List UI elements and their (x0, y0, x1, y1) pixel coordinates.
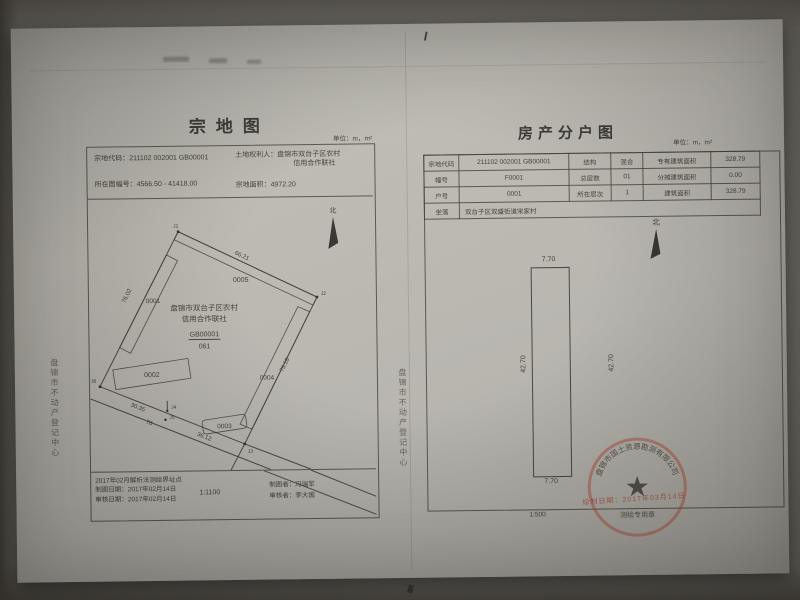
parcel-code-value: 211102 002001 GB00001 (129, 154, 208, 162)
cell-label: 户号 (424, 187, 459, 203)
cell-label: 建筑面积 (643, 184, 711, 201)
bleed-through-mark (247, 60, 261, 64)
seal-star-icon: ★ (625, 471, 650, 502)
unit-outline (531, 267, 573, 477)
credits: 制图者：冯瑞军 审核者：李大国 (269, 479, 315, 502)
registry-center-vertical-text-middle: 盘锦市不动产登记中心 (397, 368, 410, 528)
cell-label: 分摊建筑面积 (643, 168, 711, 185)
point-j2-label: J2 (321, 291, 327, 297)
unit-dim-left: 42.70 (520, 327, 528, 401)
cell-label: 幢号 (424, 171, 459, 187)
cell-value-location: 双台子区双盛街道宋家村 (459, 199, 760, 219)
seal-title: 测绘专用章 (620, 510, 655, 519)
rights-holder-value-line2: 信用合作联社 (235, 158, 369, 169)
cell-value: 328.79 (711, 183, 760, 200)
dim-right-edge: 73.18 (279, 357, 291, 374)
north-arrow-icon (650, 229, 660, 259)
unit-map-scale: 1:500 (503, 510, 573, 520)
registry-center-vertical-text-left: 盘锦市不动产登记中心 (49, 358, 62, 518)
unit-dim-bottom: 7.70 (521, 478, 581, 486)
unit-map-north: 北 (643, 215, 670, 261)
dim-left-edge: 76.02 (121, 288, 133, 305)
map-sheet-label: 所在图幅号： (95, 181, 137, 189)
cell-label: 结构 (569, 153, 611, 170)
building-0004-outline (239, 307, 311, 430)
unit-info-table: 宗地代码 211102 002001 GB00001 结构 混合 专有建筑面积 … (423, 151, 761, 220)
north-label: 北 (652, 218, 660, 227)
owner-name-line2: 信用合作联社 (182, 313, 228, 324)
paper-crease (29, 62, 765, 72)
owner-name-line1: 盘锦市双台子区农村 (170, 302, 238, 313)
bleed-through-mark (209, 58, 227, 63)
building-0003-label: 0003 (217, 423, 232, 430)
cell-value: F0001 (459, 169, 569, 186)
rights-holder-value-line1: 盘锦市双台子区农村 (277, 151, 340, 159)
point-j4-label: J4 (171, 405, 176, 411)
parcel-code-label: 宗地代码： (94, 155, 129, 162)
cell-label: 所在层次 (569, 185, 611, 202)
parcel-map-drawing: 北 0005 0001 0002 0003 (88, 196, 376, 471)
parcel-area-field: 宗地面积：4972.20 (236, 180, 296, 190)
building-0002-label: 0002 (144, 372, 160, 379)
land-use-code: 061 (199, 343, 211, 350)
rights-holder-field: 土地权利人：盘锦市双台子区农村 信用合作联社 (235, 149, 369, 169)
document-paper: 宗地图 单位：m，m² 宗地代码：211102 002001 GB00001 土… (11, 19, 790, 582)
cell-label: 总层数 (569, 169, 611, 186)
point-j3-label: J3 (248, 449, 254, 455)
parcel-number: GB00001 (190, 331, 220, 338)
unit-dim-top: 7.70 (518, 256, 578, 264)
drafter-name: 制图者：冯瑞军 (269, 479, 315, 491)
point-j1-label: J1 (173, 224, 179, 230)
cell-value: 1 (611, 185, 643, 201)
cell-value: 混合 (611, 153, 643, 169)
building-0005-label: 0005 (233, 277, 249, 284)
cell-value: 328.79 (711, 151, 760, 168)
point-j5-label: J5 (169, 415, 174, 421)
rights-holder-label: 土地权利人： (235, 151, 277, 159)
dim-top-edge: 66.21 (234, 250, 251, 262)
photo-of-document: 宗地图 单位：m，m² 宗地代码：211102 002001 GB00001 土… (0, 0, 800, 600)
dim-road: 76 (145, 419, 154, 427)
building-0004-label: 0004 (260, 375, 275, 382)
bleed-through-mark (163, 57, 189, 62)
parcel-area-label: 宗地面积： (236, 182, 271, 189)
building-0001-label: 0001 (146, 298, 161, 305)
survey-note-review-date: 审核日期：2017年02月14日 (95, 495, 182, 505)
pen-tick-mark (424, 32, 428, 41)
parcel-map-panel: 宗地代码：211102 002001 GB00001 土地权利人：盘锦市双台子区… (86, 143, 380, 522)
cell-label: 宗地代码 (424, 155, 459, 171)
building-0005-outline (174, 230, 317, 307)
north-arrow-icon (328, 217, 338, 249)
cell-label: 坐落 (424, 203, 459, 219)
surveyor-seal: 盘锦市国土资源勘测有限公司 ★ 测绘专用章 (585, 434, 690, 539)
parcel-area-value: 4972.20 (271, 181, 296, 188)
table-row: 坐落 双台子区双盛街道宋家村 (424, 199, 760, 219)
parcel-map-footer: 2017年02月解析法测绘界址点 制图日期：2017年02月14日 审核日期：2… (91, 468, 377, 519)
survey-notes: 2017年02月解析法测绘界址点 制图日期：2017年02月14日 审核日期：2… (95, 476, 182, 505)
reviewer-name: 审核者：李大国 (269, 490, 315, 502)
parcel-map-header: 宗地代码：211102 002001 GB00001 土地权利人：盘锦市双台子区… (87, 144, 373, 199)
unit-dim-right: 42.70 (608, 326, 616, 400)
map-sheet-field: 所在图幅号：4566.50 - 41418.00 (95, 179, 198, 189)
cell-value: 211102 002001 GB00001 (459, 153, 569, 170)
cell-value: 0.00 (711, 167, 760, 184)
map-sheet-value: 4566.50 - 41418.00 (137, 180, 198, 188)
unit-map-unit-label: 单位：m，m² (608, 138, 712, 149)
parcel-map-scale: 1:1100 (199, 488, 220, 497)
cell-value: 01 (611, 169, 643, 185)
north-label: 北 (329, 207, 336, 215)
point-j6-label: J6 (91, 379, 97, 385)
parcel-code-field: 宗地代码：211102 002001 GB00001 (94, 153, 208, 163)
cell-label: 专有建筑面积 (643, 152, 711, 169)
cell-value: 0001 (459, 185, 569, 202)
